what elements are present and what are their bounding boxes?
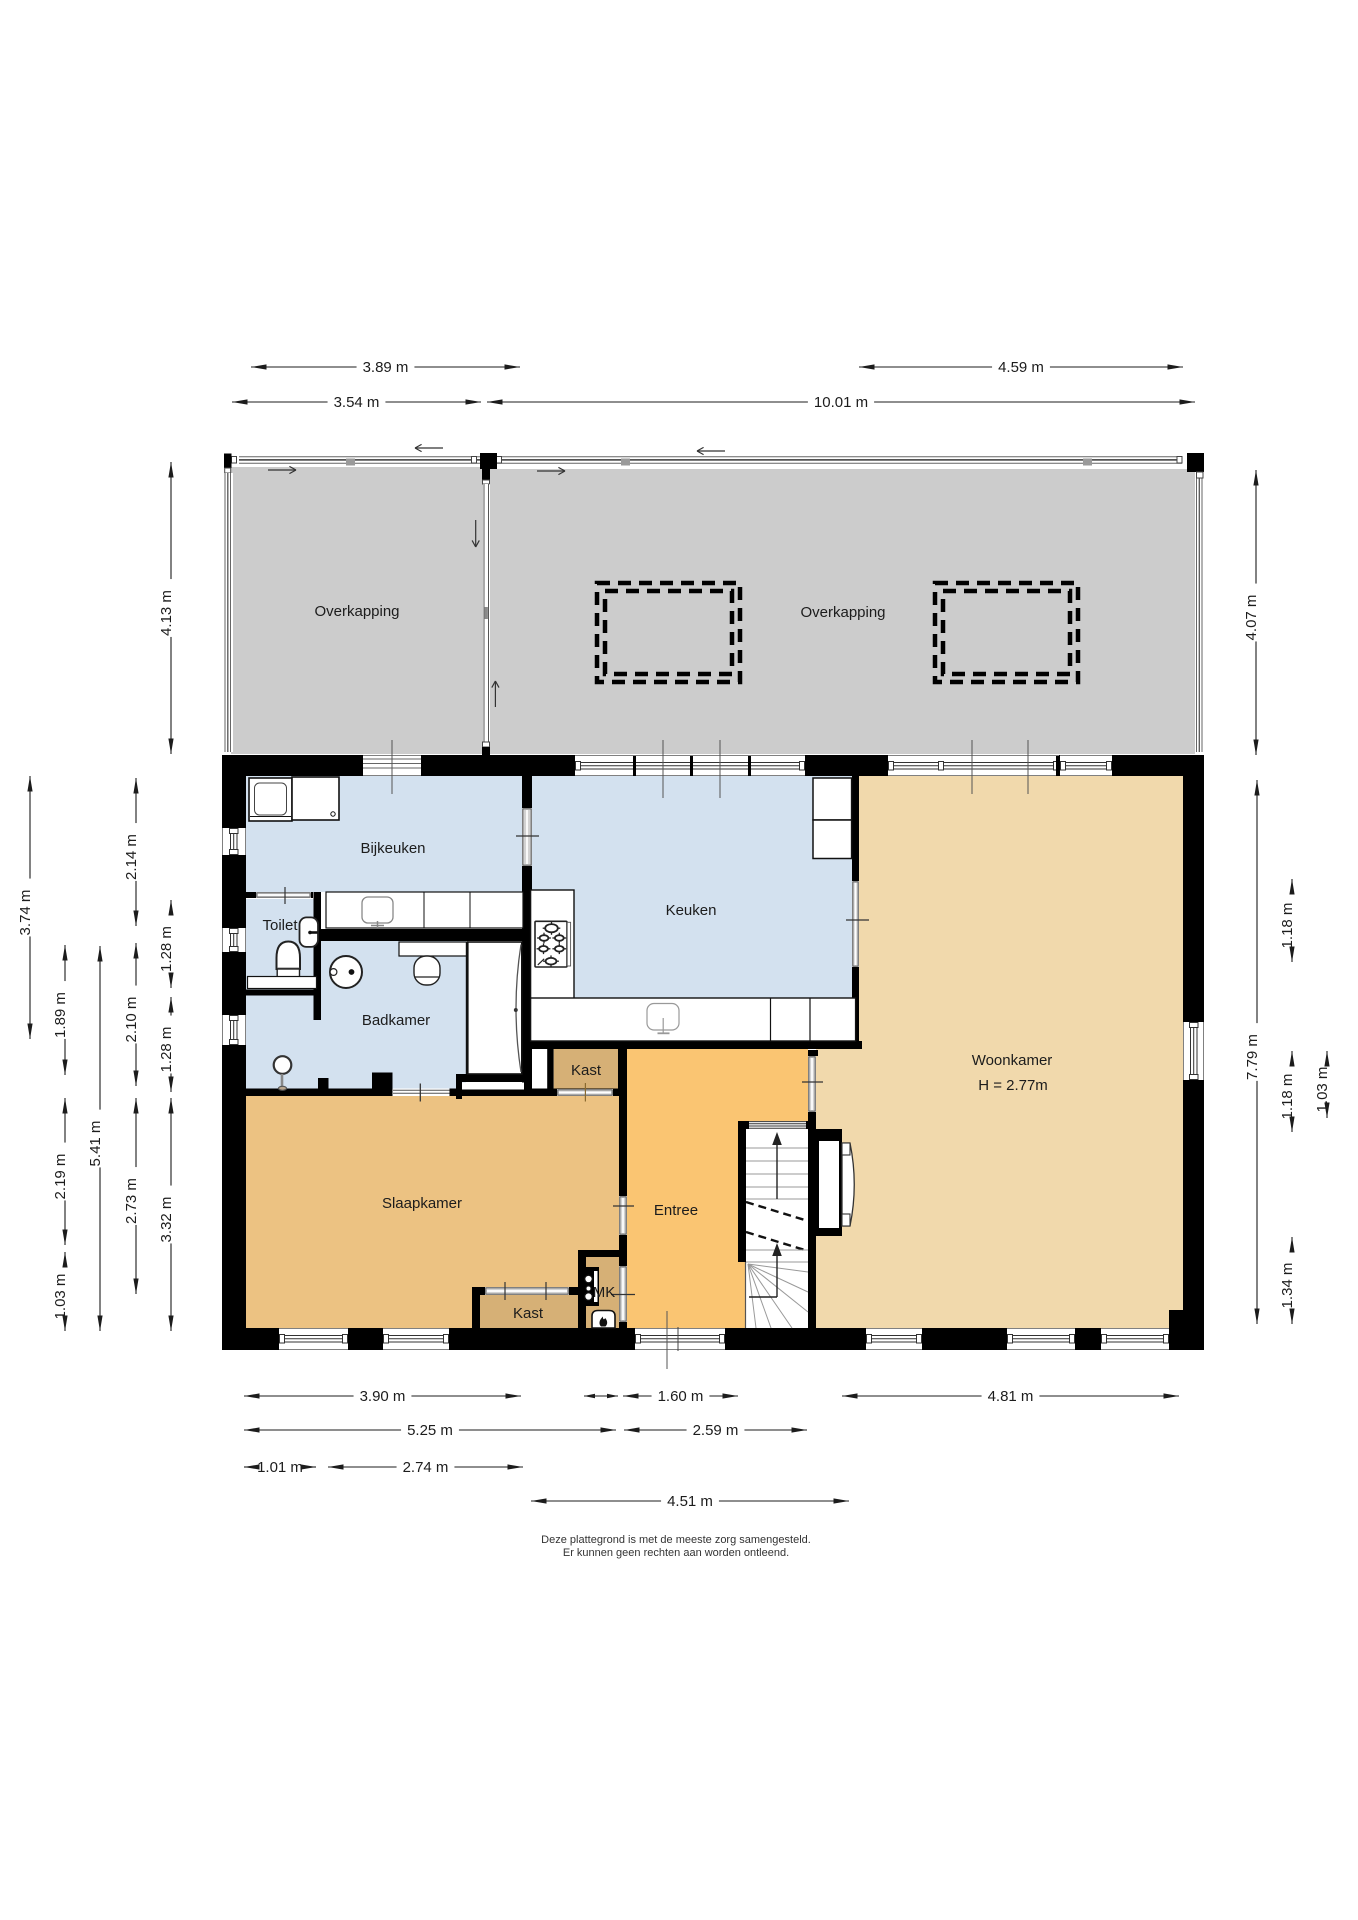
svg-text:MK: MK [593, 1284, 616, 1301]
svg-text:Kast: Kast [571, 1062, 602, 1079]
svg-text:1.01 m: 1.01 m [257, 1459, 303, 1476]
svg-text:1.03 m: 1.03 m [1314, 1067, 1331, 1113]
svg-text:10.01 m: 10.01 m [814, 394, 868, 411]
svg-text:1.18 m: 1.18 m [1279, 1074, 1296, 1120]
svg-text:Entree: Entree [654, 1202, 698, 1219]
svg-text:Woonkamer: Woonkamer [972, 1052, 1053, 1069]
svg-text:4.59 m: 4.59 m [998, 359, 1044, 376]
svg-text:1.28 m: 1.28 m [158, 926, 175, 972]
svg-text:1.03 m: 1.03 m [52, 1274, 69, 1320]
svg-text:4.07 m: 4.07 m [1243, 595, 1260, 641]
svg-text:4.81 m: 4.81 m [988, 1388, 1034, 1405]
svg-text:2.73 m: 2.73 m [123, 1178, 140, 1224]
svg-text:Kast: Kast [513, 1305, 544, 1322]
svg-text:3.90 m: 3.90 m [360, 1388, 406, 1405]
svg-text:2.14 m: 2.14 m [123, 834, 140, 880]
svg-text:Bijkeuken: Bijkeuken [360, 840, 425, 857]
svg-text:Overkapping: Overkapping [314, 603, 399, 620]
svg-text:3.74 m: 3.74 m [17, 890, 34, 936]
svg-text:Overkapping: Overkapping [800, 604, 885, 621]
svg-text:2.10 m: 2.10 m [123, 997, 140, 1043]
svg-text:2.59 m: 2.59 m [693, 1422, 739, 1439]
svg-text:H = 2.77m: H = 2.77m [978, 1077, 1048, 1094]
svg-text:2.74 m: 2.74 m [403, 1459, 449, 1476]
svg-text:7.79 m: 7.79 m [1244, 1034, 1261, 1080]
svg-text:5.25 m: 5.25 m [407, 1422, 453, 1439]
svg-text:1.34 m: 1.34 m [1279, 1263, 1296, 1309]
svg-text:1.60 m: 1.60 m [658, 1388, 704, 1405]
svg-text:Slaapkamer: Slaapkamer [382, 1195, 462, 1212]
svg-text:3.32 m: 3.32 m [158, 1197, 175, 1243]
svg-text:4.51 m: 4.51 m [667, 1493, 713, 1510]
svg-text:1.18 m: 1.18 m [1279, 903, 1296, 949]
svg-text:Deze plattegrond is met de mee: Deze plattegrond is met de meeste zorg s… [541, 1534, 811, 1546]
svg-text:Er kunnen geen rechten aan wor: Er kunnen geen rechten aan worden ontlee… [563, 1547, 789, 1559]
svg-text:4.13 m: 4.13 m [158, 590, 175, 636]
svg-text:1.89 m: 1.89 m [52, 992, 69, 1038]
svg-text:5.41 m: 5.41 m [87, 1121, 104, 1167]
svg-text:Keuken: Keuken [666, 902, 717, 919]
svg-text:2.19 m: 2.19 m [52, 1154, 69, 1200]
svg-text:1.28 m: 1.28 m [158, 1027, 175, 1073]
svg-text:Badkamer: Badkamer [362, 1012, 430, 1029]
svg-text:3.89 m: 3.89 m [363, 359, 409, 376]
svg-text:Toilet: Toilet [262, 917, 298, 934]
svg-text:3.54 m: 3.54 m [334, 394, 380, 411]
